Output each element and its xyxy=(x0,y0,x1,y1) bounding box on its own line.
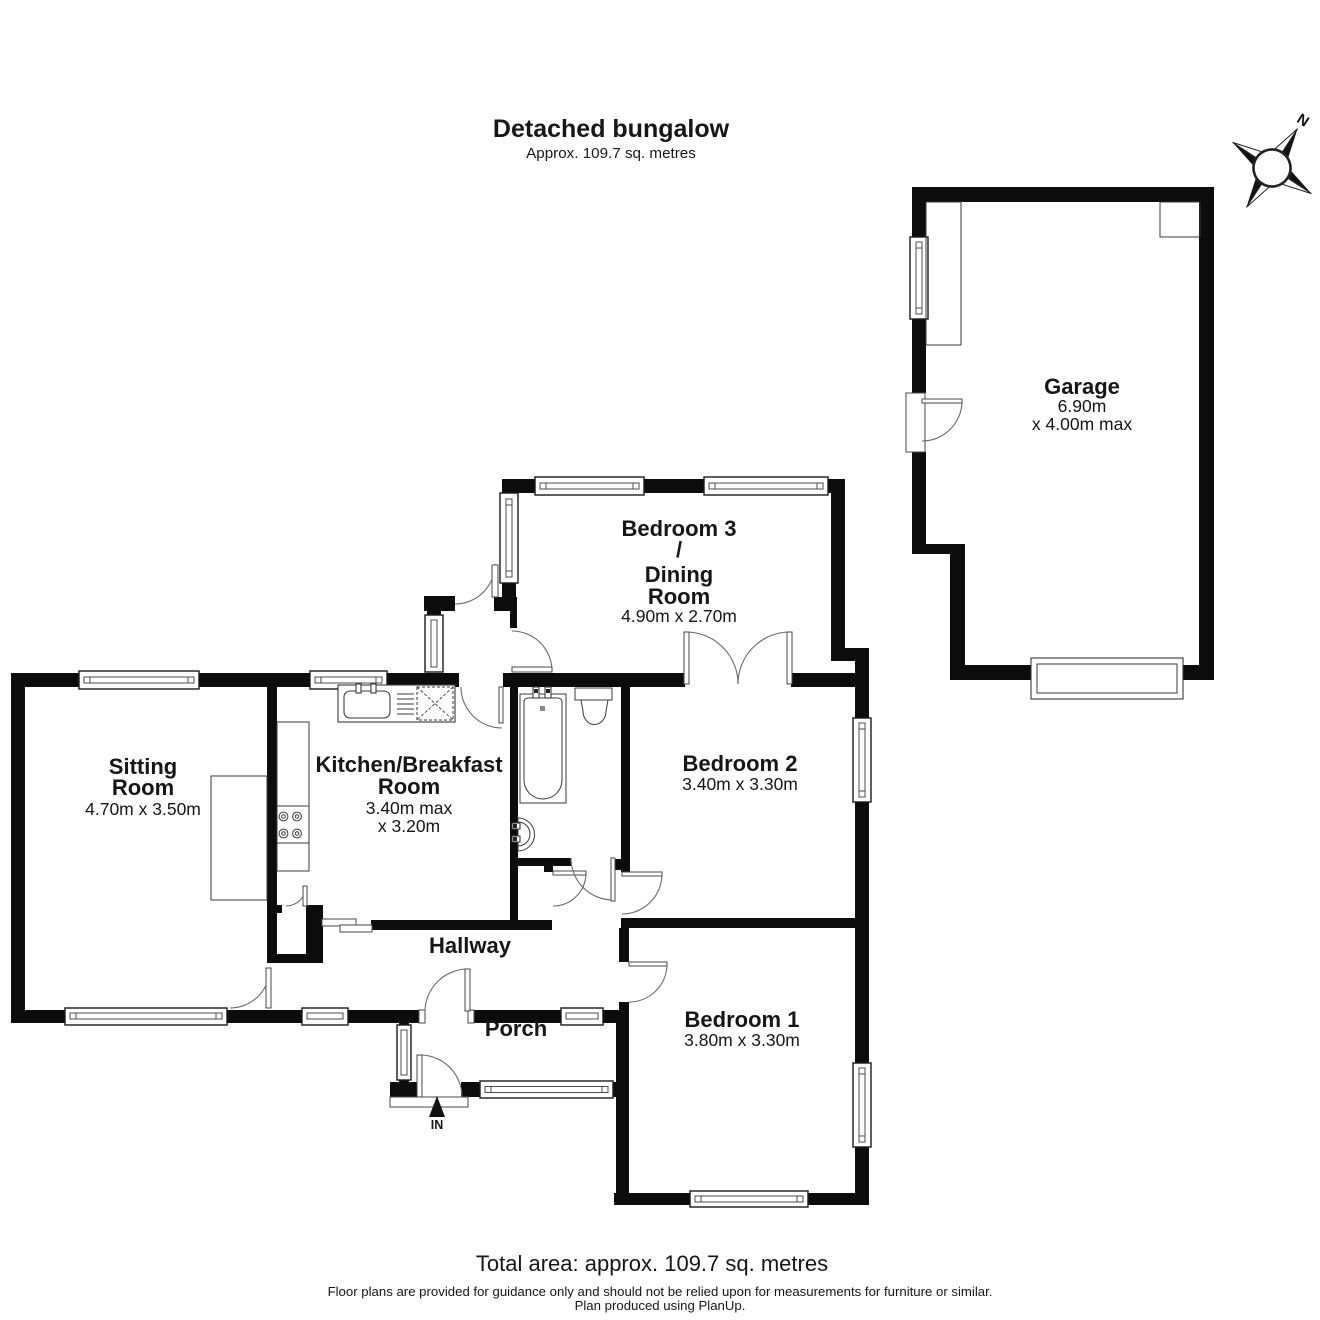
svg-text:Hallway: Hallway xyxy=(429,933,512,958)
svg-text:Approx. 109.7 sq. metres: Approx. 109.7 sq. metres xyxy=(526,145,696,162)
svg-text:3.80m x 3.30m: 3.80m x 3.30m xyxy=(684,1030,800,1050)
svg-text:Floor plans are provided for g: Floor plans are provided for guidance on… xyxy=(328,1284,993,1299)
svg-text:3.40m max: 3.40m max xyxy=(366,798,453,818)
svg-text:Bedroom 2: Bedroom 2 xyxy=(683,751,798,776)
svg-text:x 4.00m max: x 4.00m max xyxy=(1032,414,1132,434)
svg-text:Room: Room xyxy=(112,775,174,800)
svg-text:IN: IN xyxy=(431,1118,444,1132)
svg-text:4.90m x 2.70m: 4.90m x 2.70m xyxy=(621,606,737,626)
svg-text:3.40m x 3.30m: 3.40m x 3.30m xyxy=(682,774,798,794)
svg-text:x 3.20m: x 3.20m xyxy=(378,816,440,836)
svg-text:Room: Room xyxy=(378,774,440,799)
svg-text:Porch: Porch xyxy=(485,1016,547,1041)
svg-text:Detached bungalow: Detached bungalow xyxy=(493,115,730,143)
svg-text:Bedroom 1: Bedroom 1 xyxy=(685,1007,800,1032)
svg-text:4.70m x 3.50m: 4.70m x 3.50m xyxy=(85,799,201,819)
svg-text:Plan produced using PlanUp.: Plan produced using PlanUp. xyxy=(575,1298,746,1313)
svg-text:6.90m: 6.90m xyxy=(1058,396,1107,416)
svg-text:Total area: approx. 109.7 sq.: Total area: approx. 109.7 sq. metres xyxy=(476,1251,828,1276)
svg-text:/: / xyxy=(676,537,682,562)
